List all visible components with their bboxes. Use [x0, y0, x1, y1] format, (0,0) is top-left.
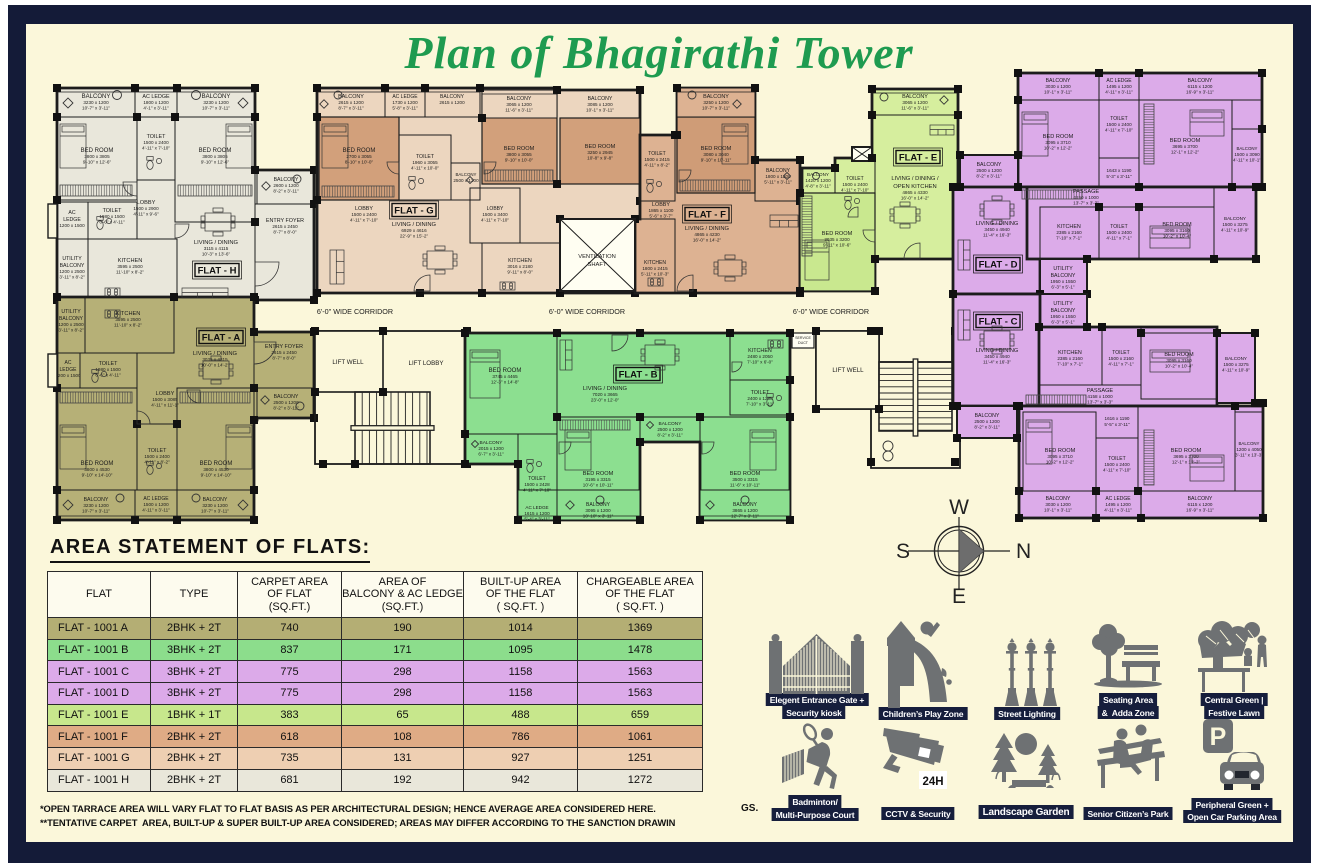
svg-text:7'-10" x 7'-1": 7'-10" x 7'-1": [1057, 361, 1083, 366]
svg-text:4'-11" x 3'-11": 4'-11" x 3'-11": [142, 507, 170, 512]
svg-text:E: E: [952, 585, 966, 608]
svg-text:2615 x 2450: 2615 x 2450: [271, 350, 297, 355]
svg-text:8'-7" x 3'-11": 8'-7" x 3'-11": [338, 105, 364, 110]
svg-text:3595 x 2500: 3595 x 2500: [115, 317, 141, 322]
svg-text:3065 x 1200: 3065 x 1200: [902, 100, 928, 105]
svg-text:10'-2" x 10'-4": 10'-2" x 10'-4": [1165, 363, 1194, 368]
svg-text:FLAT - D: FLAT - D: [979, 259, 1018, 270]
svg-text:10'-2" x 12'-2": 10'-2" x 12'-2": [1046, 459, 1075, 464]
svg-text:1500 x 2160: 1500 x 2160: [1108, 356, 1134, 361]
svg-text:1200 x 2500: 1200 x 2500: [59, 269, 85, 274]
svg-text:10'-1" x 3'-11": 10'-1" x 3'-11": [586, 107, 614, 112]
svg-text:UTILITY: UTILITY: [62, 256, 82, 262]
svg-text:1865 x 1100: 1865 x 1100: [649, 208, 674, 213]
svg-text:4'-11" x 7'-10": 4'-11" x 7'-10": [841, 187, 869, 192]
svg-text:W: W: [949, 496, 969, 519]
svg-text:10'-7" x 3'-11": 10'-7" x 3'-11": [201, 508, 229, 513]
svg-text:4'-11" x 7'-10": 4'-11" x 7'-10": [350, 217, 378, 222]
svg-text:4'-11" x 10'-9": 4'-11" x 10'-9": [1222, 367, 1250, 372]
svg-text:BALCONY: BALCONY: [1224, 216, 1246, 221]
svg-text:4'-11" x 7'-10": 4'-11" x 7'-10": [142, 145, 170, 150]
svg-text:3065 x 1200: 3065 x 1200: [506, 102, 532, 107]
svg-text:1980 x 1500: 1980 x 1500: [95, 367, 121, 372]
svg-text:5'-8" x 3'-11": 5'-8" x 3'-11": [392, 105, 418, 110]
svg-text:LIVING / DINING /: LIVING / DINING /: [891, 176, 939, 182]
svg-text:16'-0" x 14'-2": 16'-0" x 14'-2": [901, 195, 930, 200]
svg-text:8'-2" x 3'-11": 8'-2" x 3'-11": [273, 405, 299, 410]
svg-text:10'-3" x 13'-6": 10'-3" x 13'-6": [202, 251, 231, 256]
svg-text:9'-11" x 8'-0": 9'-11" x 8'-0": [507, 269, 533, 274]
svg-text:FLAT - H: FLAT - H: [198, 265, 237, 276]
svg-text:3030 x 1200: 3030 x 1200: [1045, 84, 1071, 89]
svg-text:LIFT WELL: LIFT WELL: [832, 367, 864, 374]
svg-text:3695 x 3700: 3695 x 3700: [1172, 144, 1198, 149]
svg-text:8'-2" x 3'-11": 8'-2" x 3'-11": [976, 173, 1002, 178]
svg-text:SERVICE: SERVICE: [795, 336, 811, 340]
svg-text:1500 x 2400: 1500 x 2400: [1106, 230, 1132, 235]
svg-text:10'-1" x 3'-11": 10'-1" x 3'-11": [1044, 89, 1072, 94]
svg-text:7020 x 3665: 7020 x 3665: [592, 392, 618, 397]
svg-text:3800 x 4530: 3800 x 4530: [84, 467, 110, 472]
svg-text:1500 x 3275: 1500 x 3275: [1222, 222, 1248, 227]
svg-text:3095 x 3710: 3095 x 3710: [1047, 454, 1073, 459]
svg-text:9'-10" x 10'-0": 9'-10" x 10'-0": [505, 157, 534, 162]
svg-text:4'-11" x 7'-10": 4'-11" x 7'-10": [523, 487, 551, 492]
svg-text:1800 x 1200: 1800 x 1200: [143, 100, 169, 105]
svg-text:2615 x 1200: 2615 x 1200: [338, 100, 364, 105]
svg-text:11'-6" x 3'-11": 11'-6" x 3'-11": [901, 105, 929, 110]
svg-text:4'-11" x 10'-9": 4'-11" x 10'-9": [1221, 227, 1249, 232]
svg-text:1950 x 1550: 1950 x 1550: [1050, 314, 1076, 319]
svg-text:5'-3" x 3'-11": 5'-3" x 3'-11": [1106, 174, 1132, 179]
svg-text:9'-10" x 14'-10": 9'-10" x 14'-10": [82, 472, 113, 477]
svg-text:2615 x 2450: 2615 x 2450: [272, 224, 298, 229]
svg-text:3'-11" x 13'-3": 3'-11" x 13'-3": [1235, 452, 1263, 457]
svg-text:1200 x 1500: 1200 x 1500: [55, 373, 81, 378]
svg-text:23'-0" x 12'-0": 23'-0" x 12'-0": [591, 397, 620, 402]
svg-text:7'-10" x 6'-0": 7'-10" x 6'-0": [747, 359, 773, 364]
svg-text:6115 x 1200: 6115 x 1200: [1188, 84, 1213, 89]
svg-text:3250 x 1200: 3250 x 1200: [703, 100, 729, 105]
svg-text:3'-11" x 8'-2": 3'-11" x 8'-2": [59, 274, 85, 279]
svg-text:UTILITY: UTILITY: [1053, 301, 1073, 307]
svg-text:4'-11" x 7'-1": 4'-11" x 7'-1": [1106, 235, 1132, 240]
svg-text:3030 x 1200: 3030 x 1200: [1045, 502, 1071, 507]
svg-text:SHAFT: SHAFT: [587, 262, 606, 268]
svg-text:LIFT WELL: LIFT WELL: [332, 359, 364, 366]
svg-text:3230 x 1200: 3230 x 1200: [203, 100, 229, 105]
svg-text:1960 x 3055: 1960 x 3055: [412, 160, 438, 165]
svg-text:11'-4" x 16'-3": 11'-4" x 16'-3": [983, 359, 1011, 364]
svg-text:9'-10" x 12'-6": 9'-10" x 12'-6": [201, 159, 230, 164]
svg-text:4'-11" x 7'-10": 4'-11" x 7'-10": [1105, 127, 1133, 132]
svg-text:1800 x 1200: 1800 x 1200: [765, 174, 791, 179]
svg-text:BALCONY: BALCONY: [1225, 356, 1247, 361]
svg-text:16'-9" x 3'-11": 16'-9" x 3'-11": [1186, 507, 1214, 512]
svg-text:2400 x 1200: 2400 x 1200: [747, 396, 773, 401]
svg-text:10'-1" x 3'-11": 10'-1" x 3'-11": [1044, 507, 1072, 512]
svg-text:1500 x 1200: 1500 x 1200: [143, 502, 169, 507]
svg-text:1495 x 1200: 1495 x 1200: [1105, 502, 1131, 507]
svg-text:1500 x 3085: 1500 x 3085: [152, 397, 178, 402]
svg-text:1950 x 1550: 1950 x 1550: [1050, 279, 1076, 284]
svg-text:4'-8" x 3'-11": 4'-8" x 3'-11": [805, 183, 831, 188]
svg-text:1800 x 2415: 1800 x 2415: [642, 266, 668, 271]
svg-text:3800 x 4530: 3800 x 4530: [203, 467, 229, 472]
svg-text:1615 x 1200: 1615 x 1200: [524, 511, 550, 516]
svg-text:3745 x 4465: 3745 x 4465: [492, 374, 518, 379]
svg-text:4'-11" x 3'-11": 4'-11" x 3'-11": [1105, 89, 1133, 94]
svg-text:24H: 24H: [922, 776, 943, 788]
svg-text:4'-11" x 3'-11": 4'-11" x 3'-11": [1104, 507, 1132, 512]
svg-text:2600 x 1200: 2600 x 1200: [273, 183, 299, 188]
svg-text:3085 x 1200: 3085 x 1200: [587, 102, 613, 107]
svg-text:3450 x 4940: 3450 x 4940: [984, 227, 1010, 232]
svg-text:10'-0" x 14'-2": 10'-0" x 14'-2": [201, 362, 230, 367]
svg-text:12'-1" x 12'-2": 12'-1" x 12'-2": [1171, 149, 1200, 154]
svg-text:7'-10" x 7'-1": 7'-10" x 7'-1": [1056, 235, 1082, 240]
svg-text:AC: AC: [68, 210, 75, 216]
svg-text:4865 x 4230: 4865 x 4230: [694, 232, 720, 237]
svg-text:1500 x 2400: 1500 x 2400: [144, 454, 170, 459]
svg-text:5'-5" x 3'-11": 5'-5" x 3'-11": [1104, 422, 1130, 427]
svg-text:DUCT: DUCT: [798, 341, 809, 345]
svg-text:UTILITY: UTILITY: [61, 309, 81, 315]
svg-text:3095 x 3160: 3095 x 3160: [1164, 228, 1190, 233]
svg-text:3230 x 1200: 3230 x 1200: [83, 100, 109, 105]
svg-text:2480 x 2050: 2480 x 2050: [747, 354, 773, 359]
svg-text:5'-11" x 3'-11": 5'-11" x 3'-11": [764, 179, 792, 184]
svg-text:2385 x 2160: 2385 x 2160: [1056, 230, 1082, 235]
svg-text:8'-2" x 3'-11": 8'-2" x 3'-11": [657, 432, 683, 437]
svg-text:9'-10" x 14'-10": 9'-10" x 14'-10": [201, 472, 232, 477]
svg-text:3800 x 3805: 3800 x 3805: [84, 154, 110, 159]
svg-text:4'-11" x 7'-10": 4'-11" x 7'-10": [481, 217, 509, 222]
svg-text:2500 x 1200: 2500 x 1200: [657, 427, 683, 432]
svg-text:2500 x 1200: 2500 x 1200: [976, 168, 1002, 173]
svg-text:3095 x 1200: 3095 x 1200: [585, 508, 611, 513]
svg-text:10'-7" x 3'-11": 10'-7" x 3'-11": [82, 508, 110, 513]
svg-text:3080 x 3040: 3080 x 3040: [703, 152, 729, 157]
svg-text:FLAT - F: FLAT - F: [688, 209, 726, 220]
svg-text:3115 x 4115: 3115 x 4115: [204, 246, 229, 251]
svg-text:6'-3" x 5'-1": 6'-3" x 5'-1": [1051, 284, 1075, 289]
svg-text:3800 x 3805: 3800 x 3805: [202, 154, 228, 159]
svg-text:BALCONY: BALCONY: [456, 172, 477, 177]
svg-text:5'-11" x 10'-3": 5'-11" x 10'-3": [641, 271, 669, 276]
svg-text:1200 x 2500: 1200 x 2500: [58, 322, 84, 327]
svg-text:11'-10" x 8'-2": 11'-10" x 8'-2": [114, 322, 142, 327]
svg-text:3500 x 3315: 3500 x 3315: [732, 477, 758, 482]
svg-text:VENTILATION: VENTILATION: [578, 254, 616, 260]
svg-text:1200 x 1500: 1200 x 1500: [59, 223, 85, 228]
svg-text:16'-0" x 14'-2": 16'-0" x 14'-2": [693, 237, 722, 242]
svg-text:10'-8" x 9'-8": 10'-8" x 9'-8": [587, 155, 613, 160]
svg-text:1500 x 2415: 1500 x 2415: [644, 157, 670, 162]
svg-text:13'-7" x 3'-3": 13'-7" x 3'-3": [1087, 399, 1113, 404]
svg-text:4'-11" x 7'-10": 4'-11" x 7'-10": [1103, 467, 1131, 472]
svg-text:1500 x 2400: 1500 x 2400: [143, 140, 169, 145]
svg-text:6'-0" WIDE CORRIDOR: 6'-0" WIDE CORRIDOR: [793, 307, 869, 316]
svg-text:3230 x 1200: 3230 x 1200: [202, 503, 228, 508]
svg-text:UTILITY: UTILITY: [1053, 266, 1073, 272]
svg-text:1200 x 4050: 1200 x 4050: [1236, 447, 1262, 452]
svg-text:10'-7" x 3'-11": 10'-7" x 3'-11": [702, 105, 730, 110]
svg-text:2015 x 1200: 2015 x 1200: [478, 446, 504, 451]
svg-text:4865 x 4330: 4865 x 4330: [902, 190, 928, 195]
svg-text:3'-11" x 8'-2": 3'-11" x 8'-2": [58, 327, 84, 332]
svg-text:12'-3" x 14'-8": 12'-3" x 14'-8": [491, 379, 520, 384]
svg-text:9'-10" x 12'-6": 9'-10" x 12'-6": [83, 159, 112, 164]
svg-text:1500 x 2428: 1500 x 2428: [524, 482, 550, 487]
svg-text:LIFT LOBBY: LIFT LOBBY: [409, 360, 444, 367]
svg-text:3230 x 1200: 3230 x 1200: [83, 503, 109, 508]
svg-text:FLAT - A: FLAT - A: [202, 332, 241, 343]
svg-text:AC: AC: [65, 360, 72, 366]
svg-text:4'-11" x 10'-0": 4'-11" x 10'-0": [411, 165, 439, 170]
svg-text:5'-4" x 3'-11": 5'-4" x 3'-11": [524, 516, 550, 521]
svg-text:1643 x 1190: 1643 x 1190: [1107, 168, 1132, 173]
svg-text:3865 x 1200: 3865 x 1200: [732, 508, 758, 513]
svg-text:1500 x 2400: 1500 x 2400: [1104, 462, 1130, 467]
svg-text:3800 x 3055: 3800 x 3055: [506, 152, 532, 157]
svg-text:11'-10" x 8'-2": 11'-10" x 8'-2": [116, 269, 144, 274]
svg-text:AC LEDGE: AC LEDGE: [525, 505, 548, 510]
svg-text:6'-0" WIDE CORRIDOR: 6'-0" WIDE CORRIDOR: [549, 307, 625, 316]
svg-text:2700 x 3055: 2700 x 3055: [346, 154, 372, 159]
svg-text:11'-4" x 16'-3": 11'-4" x 16'-3": [983, 232, 1011, 237]
svg-text:4'-11" x 10'-1": 4'-11" x 10'-1": [1233, 157, 1261, 162]
svg-text:FLAT - E: FLAT - E: [899, 152, 937, 163]
svg-text:2615 x 1200: 2615 x 1200: [439, 100, 465, 105]
svg-text:4'-11" x 11'-1": 4'-11" x 11'-1": [151, 402, 179, 407]
svg-text:9'-10" x 10'-11": 9'-10" x 10'-11": [701, 157, 732, 162]
svg-text:12'-1" x 12'-2": 12'-1" x 12'-2": [1172, 459, 1201, 464]
svg-text:10'-6" x 10'-11": 10'-6" x 10'-11": [583, 482, 614, 487]
svg-text:3016 x 2180: 3016 x 2180: [507, 264, 533, 269]
svg-text:6'-7" x 3'-11": 6'-7" x 3'-11": [478, 451, 504, 456]
svg-text:5'-6" x 3'-7": 5'-6" x 3'-7": [649, 213, 673, 218]
svg-text:2385 x 2160: 2385 x 2160: [1057, 356, 1083, 361]
svg-text:1730 x 1200: 1730 x 1200: [392, 100, 418, 105]
svg-text:16'-9" x 3'-11": 16'-9" x 3'-11": [1186, 89, 1214, 94]
svg-text:FLAT - G: FLAT - G: [394, 205, 433, 216]
svg-text:6115 x 1200: 6115 x 1200: [1188, 502, 1213, 507]
svg-text:1616 x 1190: 1616 x 1190: [1105, 416, 1130, 421]
svg-text:3195 x 3315: 3195 x 3315: [585, 477, 611, 482]
svg-text:8'-7" x 8'-0": 8'-7" x 8'-0": [272, 355, 296, 360]
svg-text:1495 x 1200: 1495 x 1200: [1106, 84, 1132, 89]
svg-text:BALCONY: BALCONY: [1239, 441, 1260, 446]
svg-text:4158 x 1000: 4158 x 1000: [1087, 394, 1113, 399]
svg-text:2500 x 1200: 2500 x 1200: [974, 419, 1000, 424]
svg-text:8'-7" x 8'-0": 8'-7" x 8'-0": [273, 229, 297, 234]
svg-text:4'-1" x 3'-11": 4'-1" x 3'-11": [143, 105, 169, 110]
svg-text:FLAT - B: FLAT - B: [619, 369, 658, 380]
svg-text:1500 x 3400: 1500 x 3400: [482, 212, 508, 217]
svg-text:1500 x 2400: 1500 x 2400: [351, 212, 377, 217]
svg-text:10'-7" x 3'-11": 10'-7" x 3'-11": [82, 105, 110, 110]
svg-text:7'-10" x 3'-11": 7'-10" x 3'-11": [746, 401, 774, 406]
svg-text:1500 x 2400: 1500 x 2400: [842, 182, 868, 187]
svg-text:8'-2" x 3'-11": 8'-2" x 3'-11": [273, 188, 299, 193]
svg-text:4'-11" x 7'-1": 4'-11" x 7'-1": [1108, 361, 1134, 366]
svg-text:N: N: [1016, 540, 1031, 563]
svg-text:3595 x 2500: 3595 x 2500: [117, 264, 143, 269]
svg-text:3250 x 2945: 3250 x 2945: [587, 150, 613, 155]
svg-text:11'-6" x 10'-11": 11'-6" x 10'-11": [730, 482, 760, 487]
svg-text:8'-2" x 3'-11": 8'-2" x 3'-11": [974, 424, 1000, 429]
svg-text:6'-0" WIDE CORRIDOR: 6'-0" WIDE CORRIDOR: [317, 307, 393, 316]
svg-text:3695 x 3700: 3695 x 3700: [1173, 454, 1199, 459]
svg-text:10'-7" x 3'-11": 10'-7" x 3'-11": [202, 105, 230, 110]
svg-text:3450 x 4940: 3450 x 4940: [984, 354, 1010, 359]
svg-text:1500 x 3090: 1500 x 3090: [1234, 152, 1260, 157]
svg-text:3035 x 3200: 3035 x 3200: [824, 237, 850, 242]
svg-text:1500 x 3275: 1500 x 3275: [1223, 362, 1249, 367]
svg-text:BALCONY: BALCONY: [1237, 146, 1258, 151]
svg-text:8'-10" x 10'-0": 8'-10" x 10'-0": [345, 159, 374, 164]
svg-text:6'-3" x 5'-1": 6'-3" x 5'-1": [1051, 319, 1075, 324]
svg-text:S: S: [896, 540, 910, 563]
svg-text:22'-9" x 15'-2": 22'-9" x 15'-2": [400, 233, 429, 238]
svg-text:4'-11" x 8'-2": 4'-11" x 8'-2": [644, 162, 670, 167]
svg-text:3095 x 3710: 3095 x 3710: [1045, 140, 1071, 145]
svg-text:1500 x 2400: 1500 x 2400: [1106, 122, 1132, 127]
svg-text:6'-6" x 4'-11": 6'-6" x 4'-11": [95, 372, 121, 377]
svg-text:2500 x 1200: 2500 x 1200: [273, 400, 299, 405]
svg-text:P: P: [1210, 723, 1227, 751]
svg-text:11'-6" x 3'-11": 11'-6" x 3'-11": [505, 107, 533, 112]
svg-text:6929 x 4616: 6929 x 4616: [401, 228, 427, 233]
